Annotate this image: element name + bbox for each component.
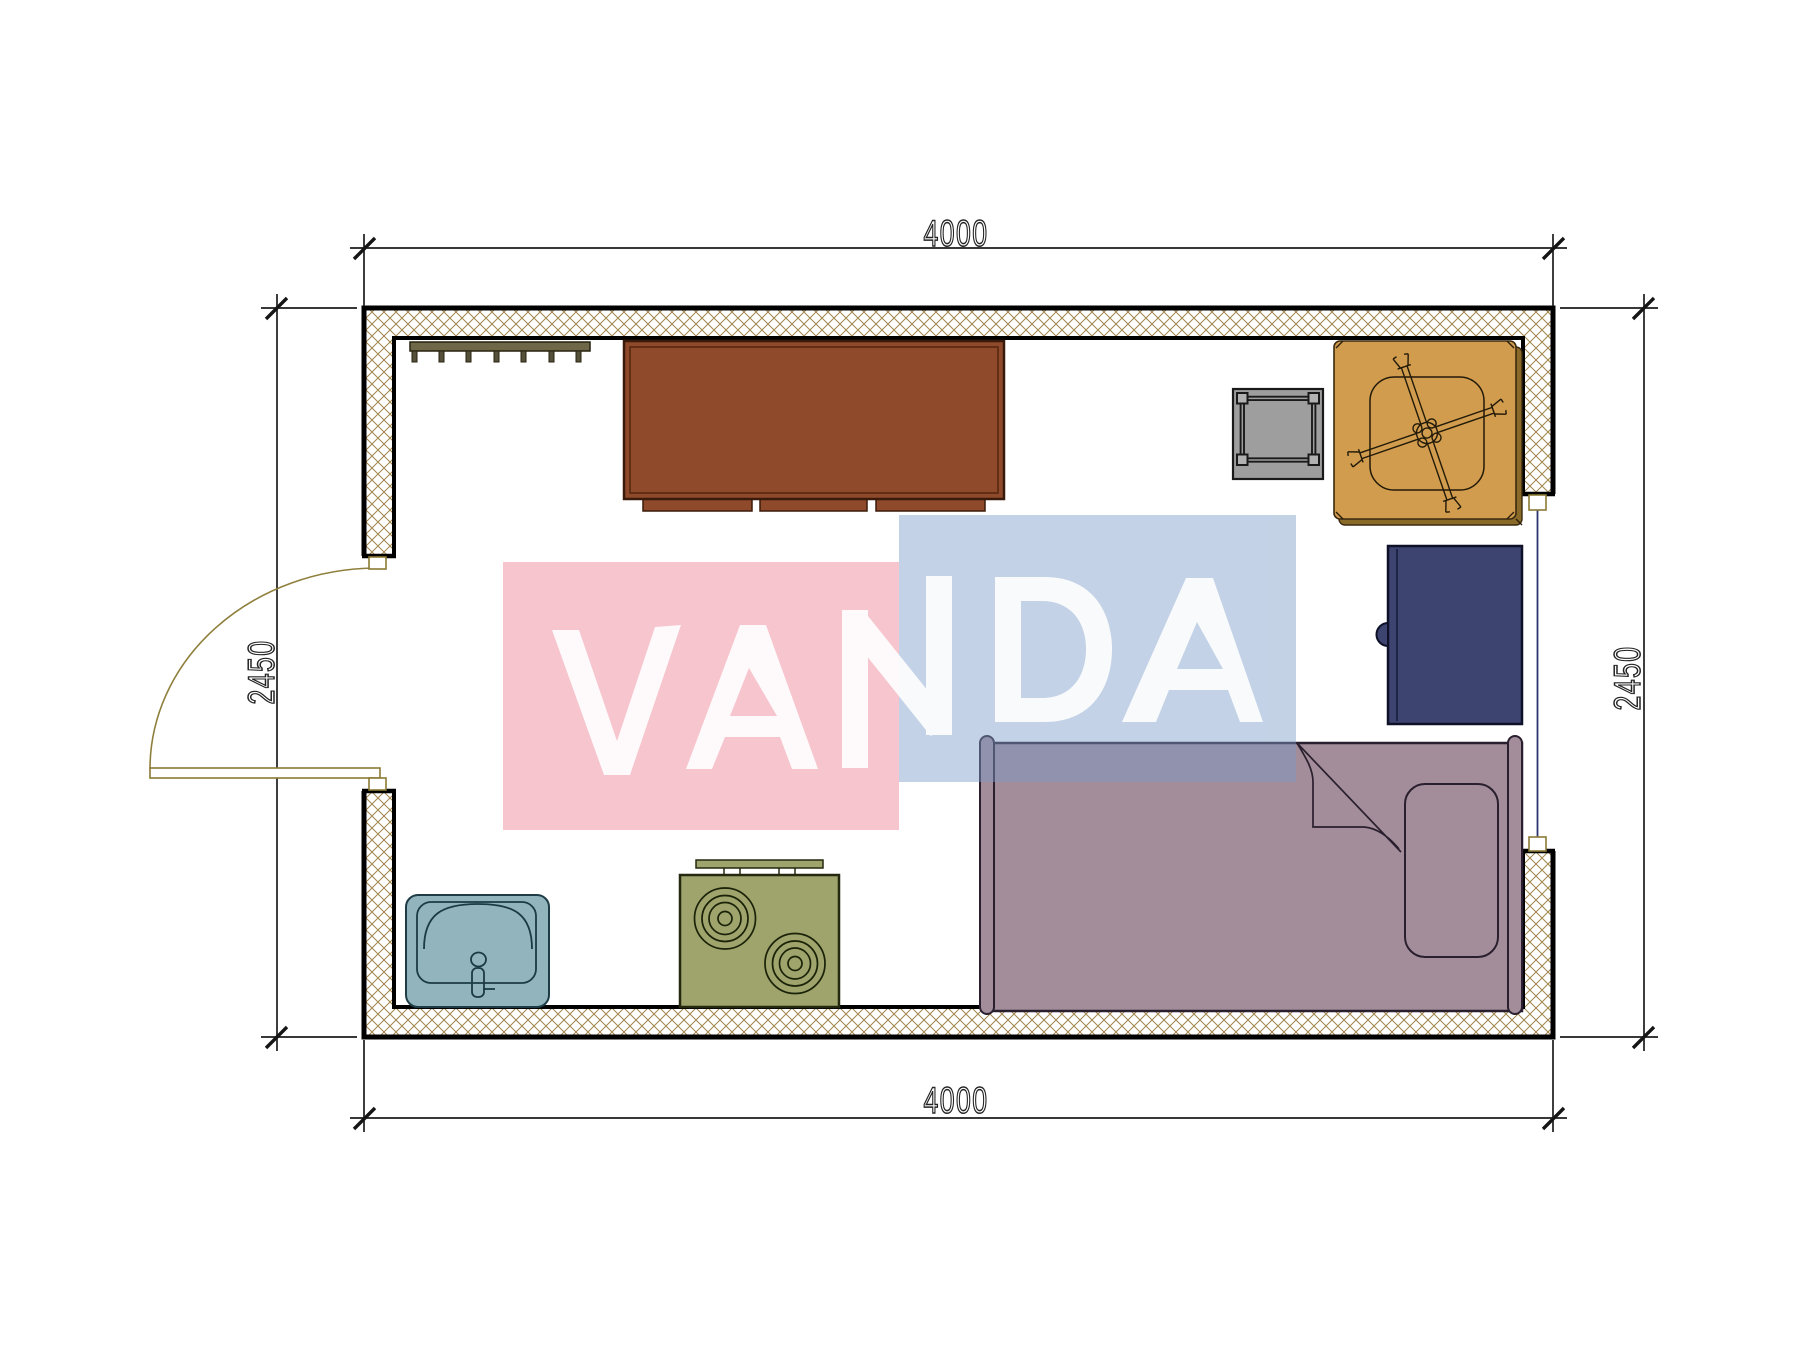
svg-text:2450: 2450 — [241, 640, 282, 705]
svg-text:2450: 2450 — [1607, 646, 1648, 711]
svg-text:4000: 4000 — [924, 1080, 989, 1121]
svg-text:4000: 4000 — [924, 213, 989, 254]
